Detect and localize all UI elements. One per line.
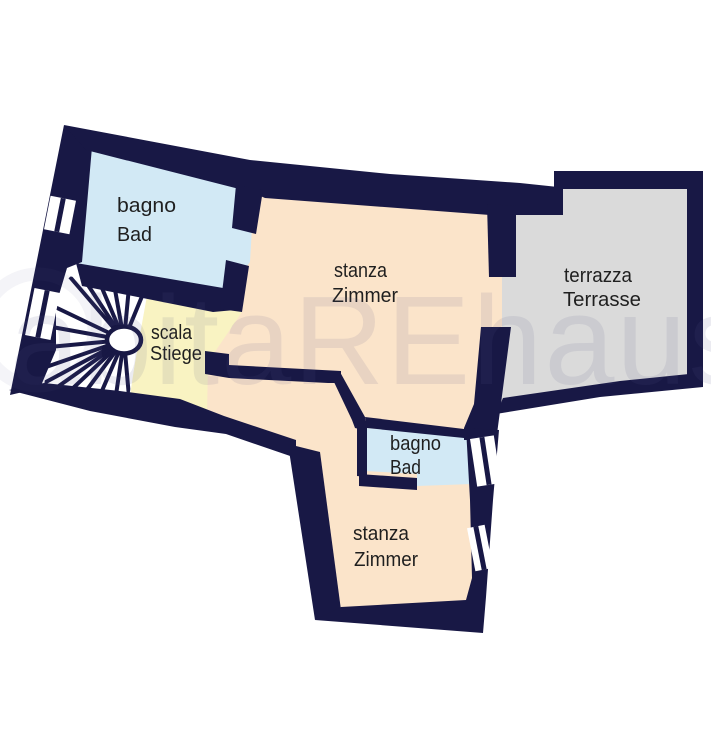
svg-text:Bad: Bad (117, 223, 152, 246)
svg-text:Zimmer: Zimmer (354, 548, 418, 571)
svg-text:stanza: stanza (353, 522, 410, 545)
svg-text:Bad: Bad (390, 456, 421, 479)
svg-text:abitaREhaus: abitaREhaus (10, 270, 711, 411)
svg-text:bagno: bagno (117, 194, 176, 217)
svg-text:bagno: bagno (390, 432, 441, 455)
